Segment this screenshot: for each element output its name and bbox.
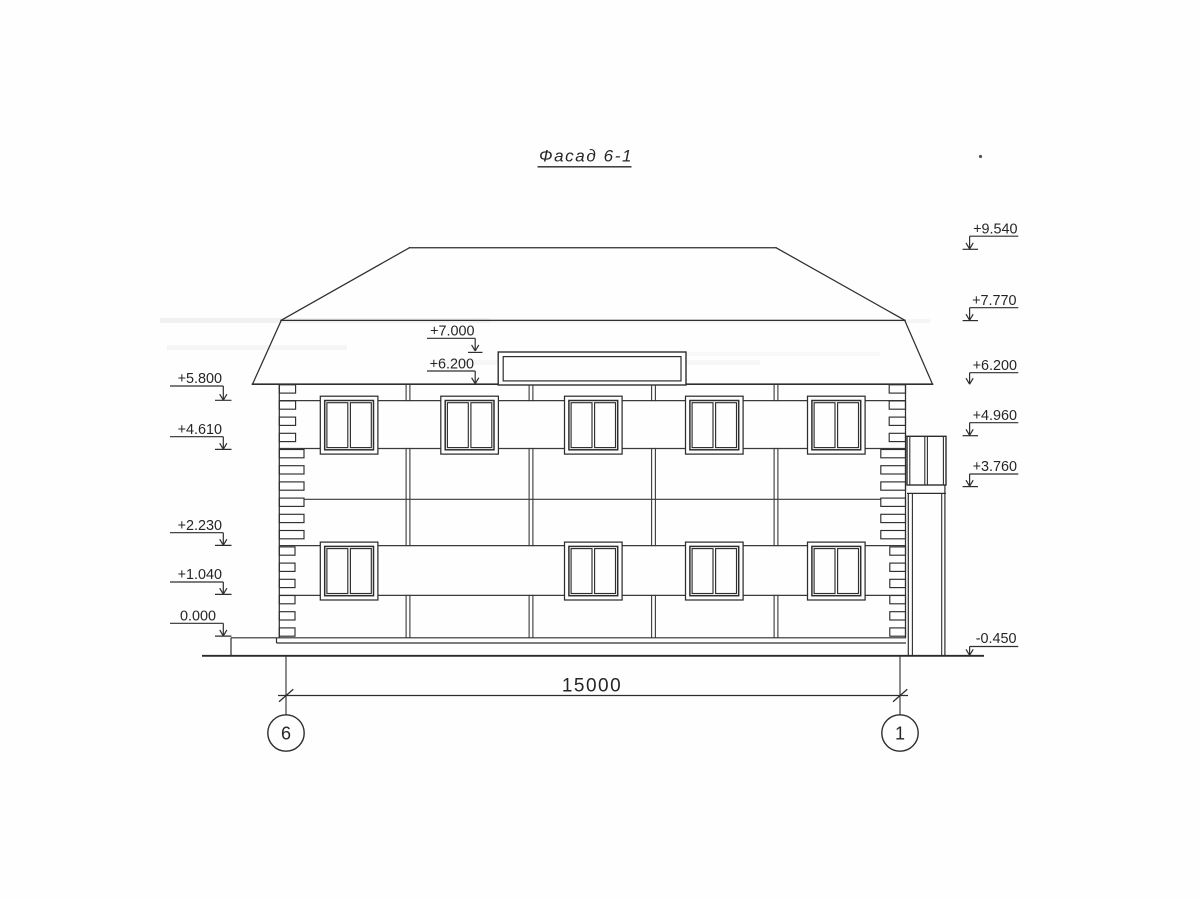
svg-text:+9.540: +9.540: [973, 221, 1017, 237]
svg-text:+7.000: +7.000: [430, 324, 474, 340]
svg-text:+4.610: +4.610: [178, 422, 222, 438]
svg-text:0.000: 0.000: [180, 609, 216, 625]
svg-text:Фасад 6-1: Фасад 6-1: [539, 147, 633, 166]
svg-text:+6.200: +6.200: [973, 358, 1017, 374]
svg-text:-0.450: -0.450: [976, 631, 1017, 647]
svg-text:+7.770: +7.770: [972, 293, 1016, 309]
svg-text:6: 6: [281, 724, 291, 744]
svg-text:+3.760: +3.760: [973, 459, 1017, 475]
svg-text:1: 1: [895, 724, 905, 744]
svg-text:+1.040: +1.040: [178, 567, 222, 583]
svg-text:15000: 15000: [562, 676, 622, 697]
svg-text:+2.230: +2.230: [178, 518, 222, 534]
svg-text:+4.960: +4.960: [973, 408, 1017, 424]
svg-text:+6.200: +6.200: [430, 356, 474, 372]
svg-text:+5.800: +5.800: [178, 371, 222, 387]
